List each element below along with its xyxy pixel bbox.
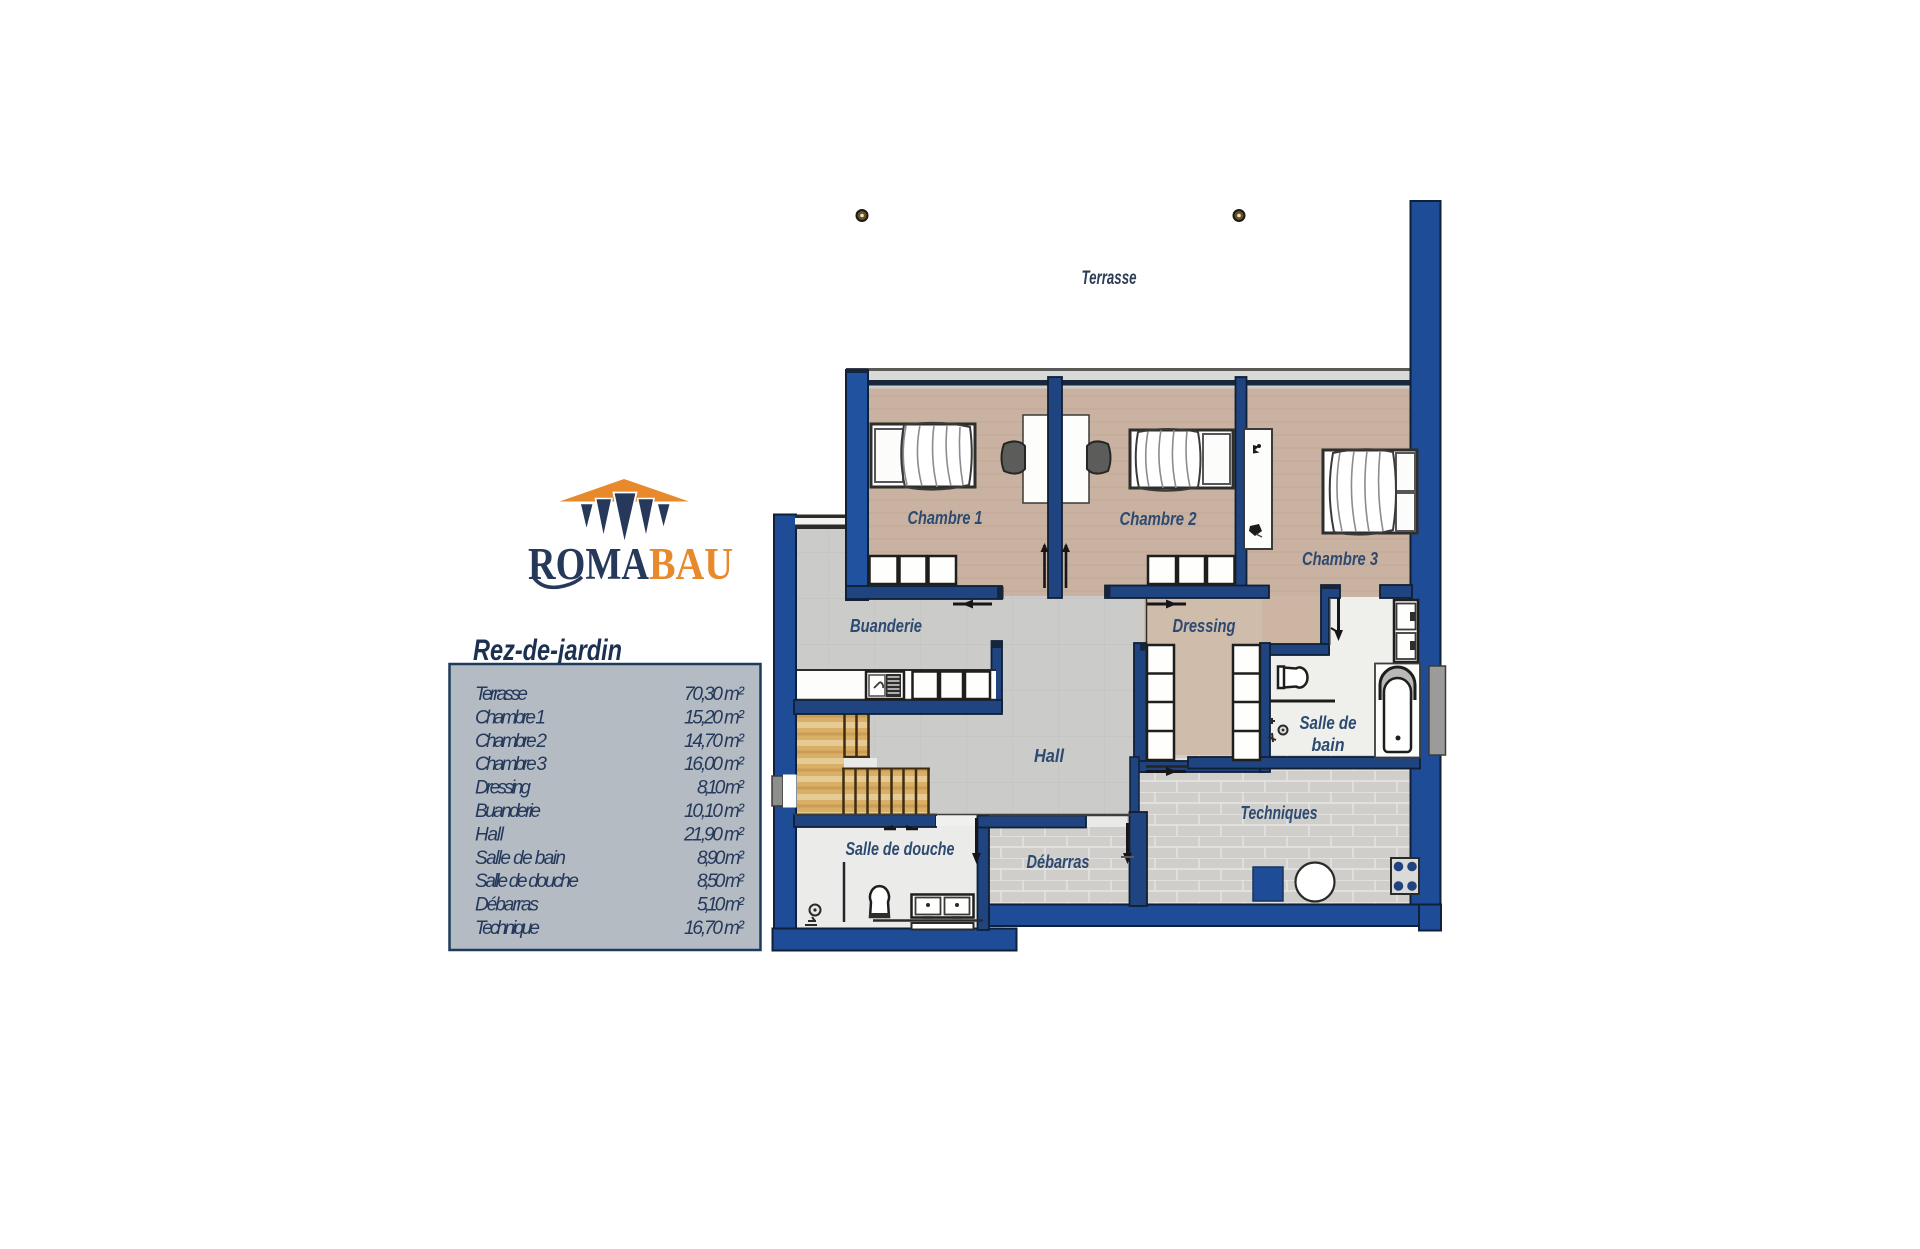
svg-text:8,50 m²: 8,50 m² (697, 871, 745, 892)
svg-text:Dressing: Dressing (1173, 615, 1236, 636)
svg-text:Chambre 3: Chambre 3 (1302, 548, 1379, 569)
svg-text:Techniques: Techniques (1241, 802, 1318, 823)
svg-text:Salle de douche: Salle de douche (475, 871, 579, 892)
svg-text:70,30 m²: 70,30 m² (684, 684, 745, 705)
svg-text:16,70 m²: 16,70 m² (684, 918, 745, 939)
svg-text:Terrasse: Terrasse (475, 684, 528, 705)
svg-text:Buanderie: Buanderie (475, 801, 541, 822)
svg-text:Salle de bain: Salle de bain (475, 848, 566, 869)
svg-text:Débarras: Débarras (1027, 851, 1090, 872)
svg-text:14,70 m²: 14,70 m² (684, 731, 745, 752)
svg-text:Salle de: Salle de (1300, 712, 1357, 733)
svg-text:8,10 m²: 8,10 m² (697, 778, 745, 799)
svg-text:Chambre 1: Chambre 1 (475, 707, 546, 728)
svg-text:Buanderie: Buanderie (850, 615, 922, 636)
svg-text:Rez-de-jardin: Rez-de-jardin (473, 634, 622, 667)
svg-text:ROMA: ROMA (528, 539, 649, 589)
svg-text:Débarras: Débarras (475, 895, 540, 916)
svg-text:Chambre 3: Chambre 3 (475, 754, 547, 775)
svg-text:Terrasse: Terrasse (1082, 268, 1137, 289)
svg-text:21,90 m²: 21,90 m² (683, 824, 745, 845)
svg-text:5,10 m²: 5,10 m² (697, 895, 745, 916)
svg-text:10,10 m²: 10,10 m² (684, 801, 745, 822)
svg-text:Technique: Technique (475, 918, 540, 939)
svg-text:16,00 m²: 16,00 m² (684, 754, 745, 775)
svg-text:bain: bain (1312, 734, 1345, 755)
svg-text:BAU: BAU (649, 539, 733, 589)
svg-text:Dressing: Dressing (475, 778, 531, 799)
svg-text:8,90 m²: 8,90 m² (697, 848, 745, 869)
svg-text:Chambre 2: Chambre 2 (1120, 508, 1198, 529)
svg-text:Salle de douche: Salle de douche (846, 838, 955, 859)
svg-text:Hall: Hall (475, 824, 505, 845)
svg-text:Hall: Hall (1034, 745, 1065, 766)
svg-text:Chambre 1: Chambre 1 (908, 507, 983, 528)
svg-text:Chambre 2: Chambre 2 (475, 731, 547, 752)
svg-text:15,20 m²: 15,20 m² (684, 707, 745, 728)
